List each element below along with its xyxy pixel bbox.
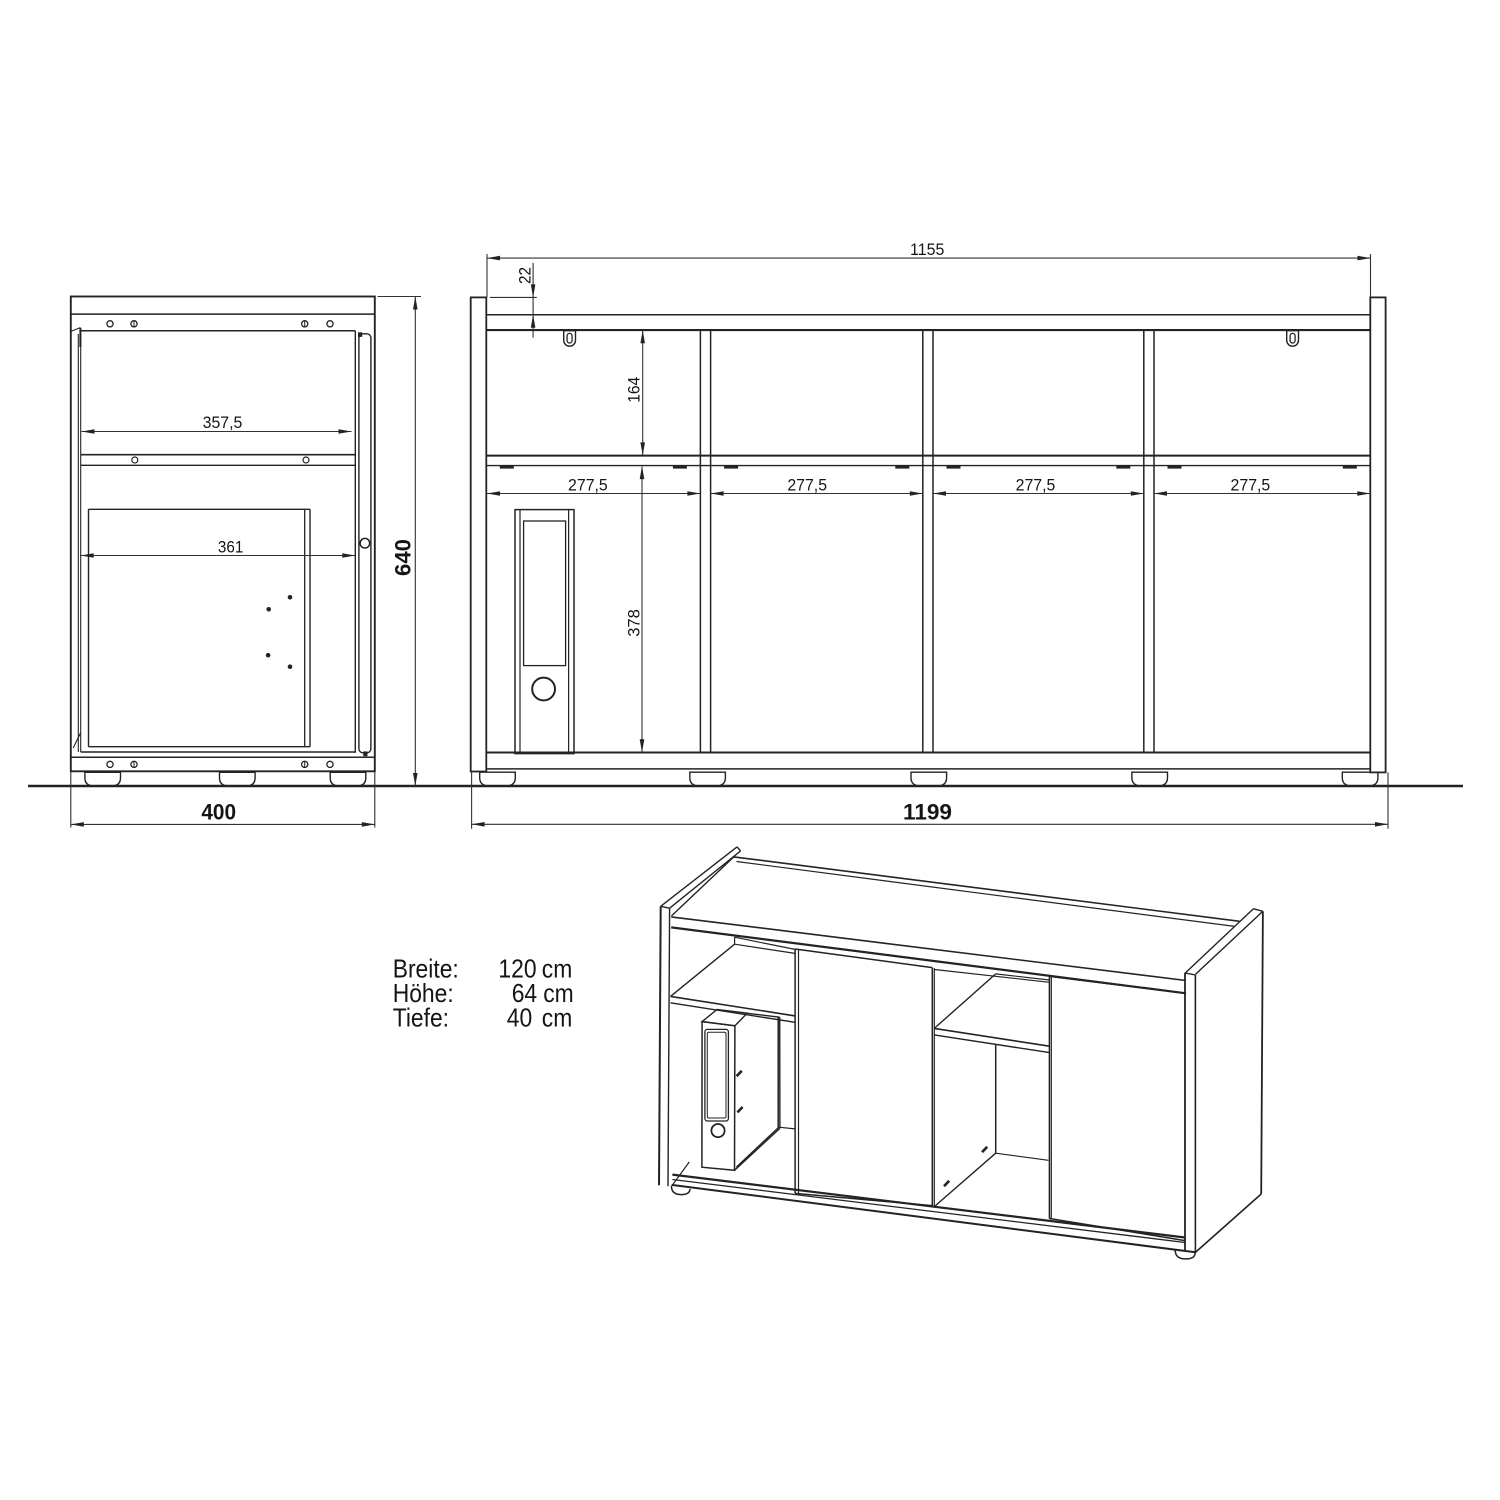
svg-text:640: 640 [391, 539, 416, 576]
svg-text:1199: 1199 [903, 800, 952, 825]
svg-text:277,5: 277,5 [568, 477, 608, 495]
svg-text:Tiefe:: Tiefe: [393, 1004, 449, 1033]
svg-text:164: 164 [625, 377, 643, 403]
svg-text:361: 361 [218, 539, 244, 557]
svg-text:277,5: 277,5 [1231, 477, 1271, 495]
svg-text:357,5: 357,5 [203, 414, 243, 432]
svg-text:40: 40 [507, 1004, 532, 1033]
svg-text:400: 400 [201, 800, 236, 825]
svg-text:277,5: 277,5 [787, 477, 827, 495]
svg-text:378: 378 [626, 609, 644, 637]
svg-text:277,5: 277,5 [1016, 477, 1056, 495]
svg-text:22: 22 [516, 267, 534, 284]
svg-text:cm: cm [542, 1004, 572, 1033]
svg-text:1155: 1155 [910, 241, 944, 259]
